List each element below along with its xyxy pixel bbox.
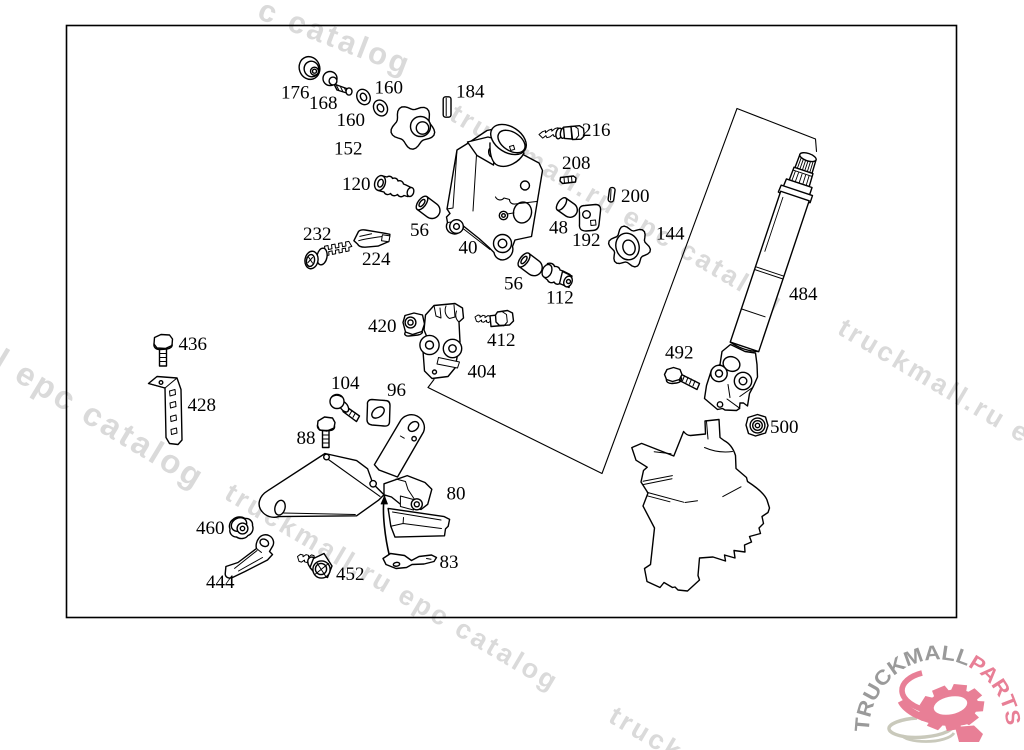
svg-text:500: 500 — [770, 417, 799, 438]
svg-text:96: 96 — [387, 380, 406, 401]
svg-text:144: 144 — [656, 224, 685, 245]
svg-text:200: 200 — [621, 186, 650, 207]
svg-text:444: 444 — [206, 572, 235, 593]
svg-text:232: 232 — [303, 224, 332, 245]
svg-text:83: 83 — [440, 552, 459, 573]
svg-text:40: 40 — [459, 238, 478, 259]
svg-text:428: 428 — [188, 395, 217, 416]
svg-text:460: 460 — [196, 518, 225, 539]
svg-text:436: 436 — [179, 334, 208, 355]
svg-text:80: 80 — [447, 484, 466, 505]
svg-text:88: 88 — [297, 428, 316, 449]
svg-text:208: 208 — [562, 153, 591, 174]
svg-text:224: 224 — [362, 249, 391, 270]
svg-text:412: 412 — [487, 330, 516, 351]
svg-text:56: 56 — [504, 274, 523, 295]
svg-text:48: 48 — [549, 218, 568, 239]
svg-text:452: 452 — [336, 564, 365, 585]
svg-text:216: 216 — [582, 120, 611, 141]
svg-text:56: 56 — [410, 220, 429, 241]
svg-text:120: 120 — [342, 174, 371, 195]
svg-text:160: 160 — [375, 78, 404, 99]
svg-text:104: 104 — [331, 373, 360, 394]
svg-text:404: 404 — [468, 362, 497, 383]
svg-text:152: 152 — [334, 139, 363, 160]
svg-text:168: 168 — [309, 93, 338, 114]
svg-text:184: 184 — [456, 82, 485, 103]
svg-text:160: 160 — [337, 110, 366, 131]
svg-text:112: 112 — [546, 288, 574, 309]
svg-text:420: 420 — [368, 316, 397, 337]
svg-text:192: 192 — [572, 230, 601, 251]
svg-text:484: 484 — [789, 284, 818, 305]
svg-text:176: 176 — [281, 83, 310, 104]
svg-text:492: 492 — [665, 343, 694, 364]
